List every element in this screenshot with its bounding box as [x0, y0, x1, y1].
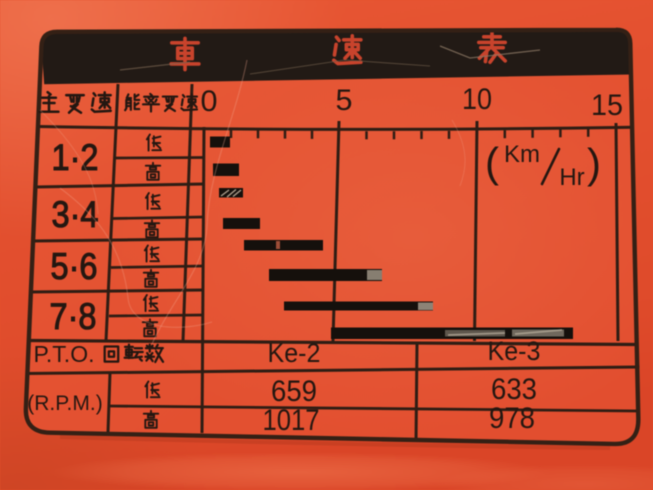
svg-text:Hr: Hr — [559, 164, 584, 191]
svg-text:Ke-3: Ke-3 — [488, 336, 541, 366]
svg-text:P.T.O.: P.T.O. — [34, 341, 95, 367]
svg-text:Ke-2: Ke-2 — [268, 338, 321, 368]
svg-text:1017: 1017 — [263, 404, 320, 437]
svg-text:10: 10 — [462, 83, 492, 116]
svg-text:15: 15 — [591, 89, 623, 122]
svg-text:(: ( — [485, 139, 499, 186]
svg-text:7·8: 7·8 — [50, 296, 97, 337]
svg-text:978: 978 — [489, 402, 535, 435]
svg-text:5: 5 — [336, 84, 353, 117]
svg-text:Km: Km — [504, 141, 540, 168]
svg-text:(R.P.M.): (R.P.M.) — [27, 392, 102, 415]
svg-text:5·6: 5·6 — [51, 246, 98, 287]
svg-text:0: 0 — [201, 85, 218, 118]
svg-text:1·2: 1·2 — [52, 137, 99, 178]
svg-text:): ) — [587, 140, 601, 187]
